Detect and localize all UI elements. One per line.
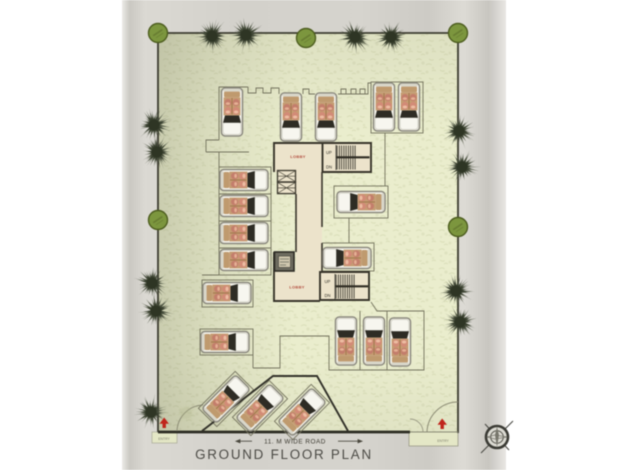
svg-text:UP: UP <box>326 150 332 155</box>
svg-text:DN: DN <box>326 165 332 170</box>
svg-text:ENTRY: ENTRY <box>437 439 449 443</box>
svg-text:11. M WIDE ROAD: 11. M WIDE ROAD <box>264 438 326 445</box>
svg-text:LOBBY: LOBBY <box>289 285 305 290</box>
svg-text:GROUND FLOOR PLAN: GROUND FLOOR PLAN <box>195 447 373 462</box>
svg-text:DN: DN <box>325 293 331 298</box>
svg-text:ENTRY: ENTRY <box>158 437 170 441</box>
svg-text:LOBBY: LOBBY <box>290 154 306 159</box>
svg-text:UP: UP <box>325 279 331 284</box>
